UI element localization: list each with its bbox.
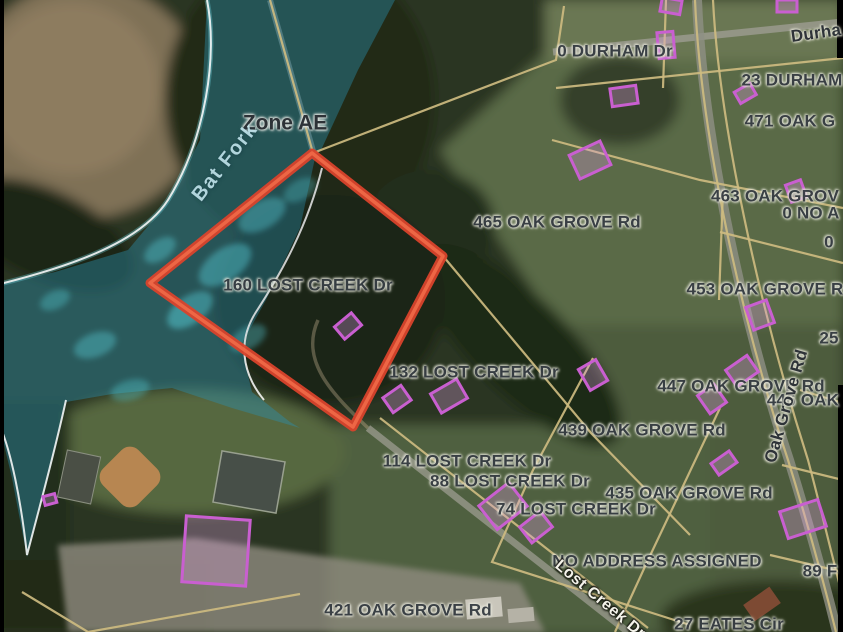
map-view[interactable]: Zone AEBat Fork0 DURHAM DrDurha23 DURHAM… xyxy=(0,0,843,632)
tennis-courts xyxy=(213,451,285,513)
map-canvas[interactable] xyxy=(0,0,843,632)
large-white-building xyxy=(182,516,250,586)
